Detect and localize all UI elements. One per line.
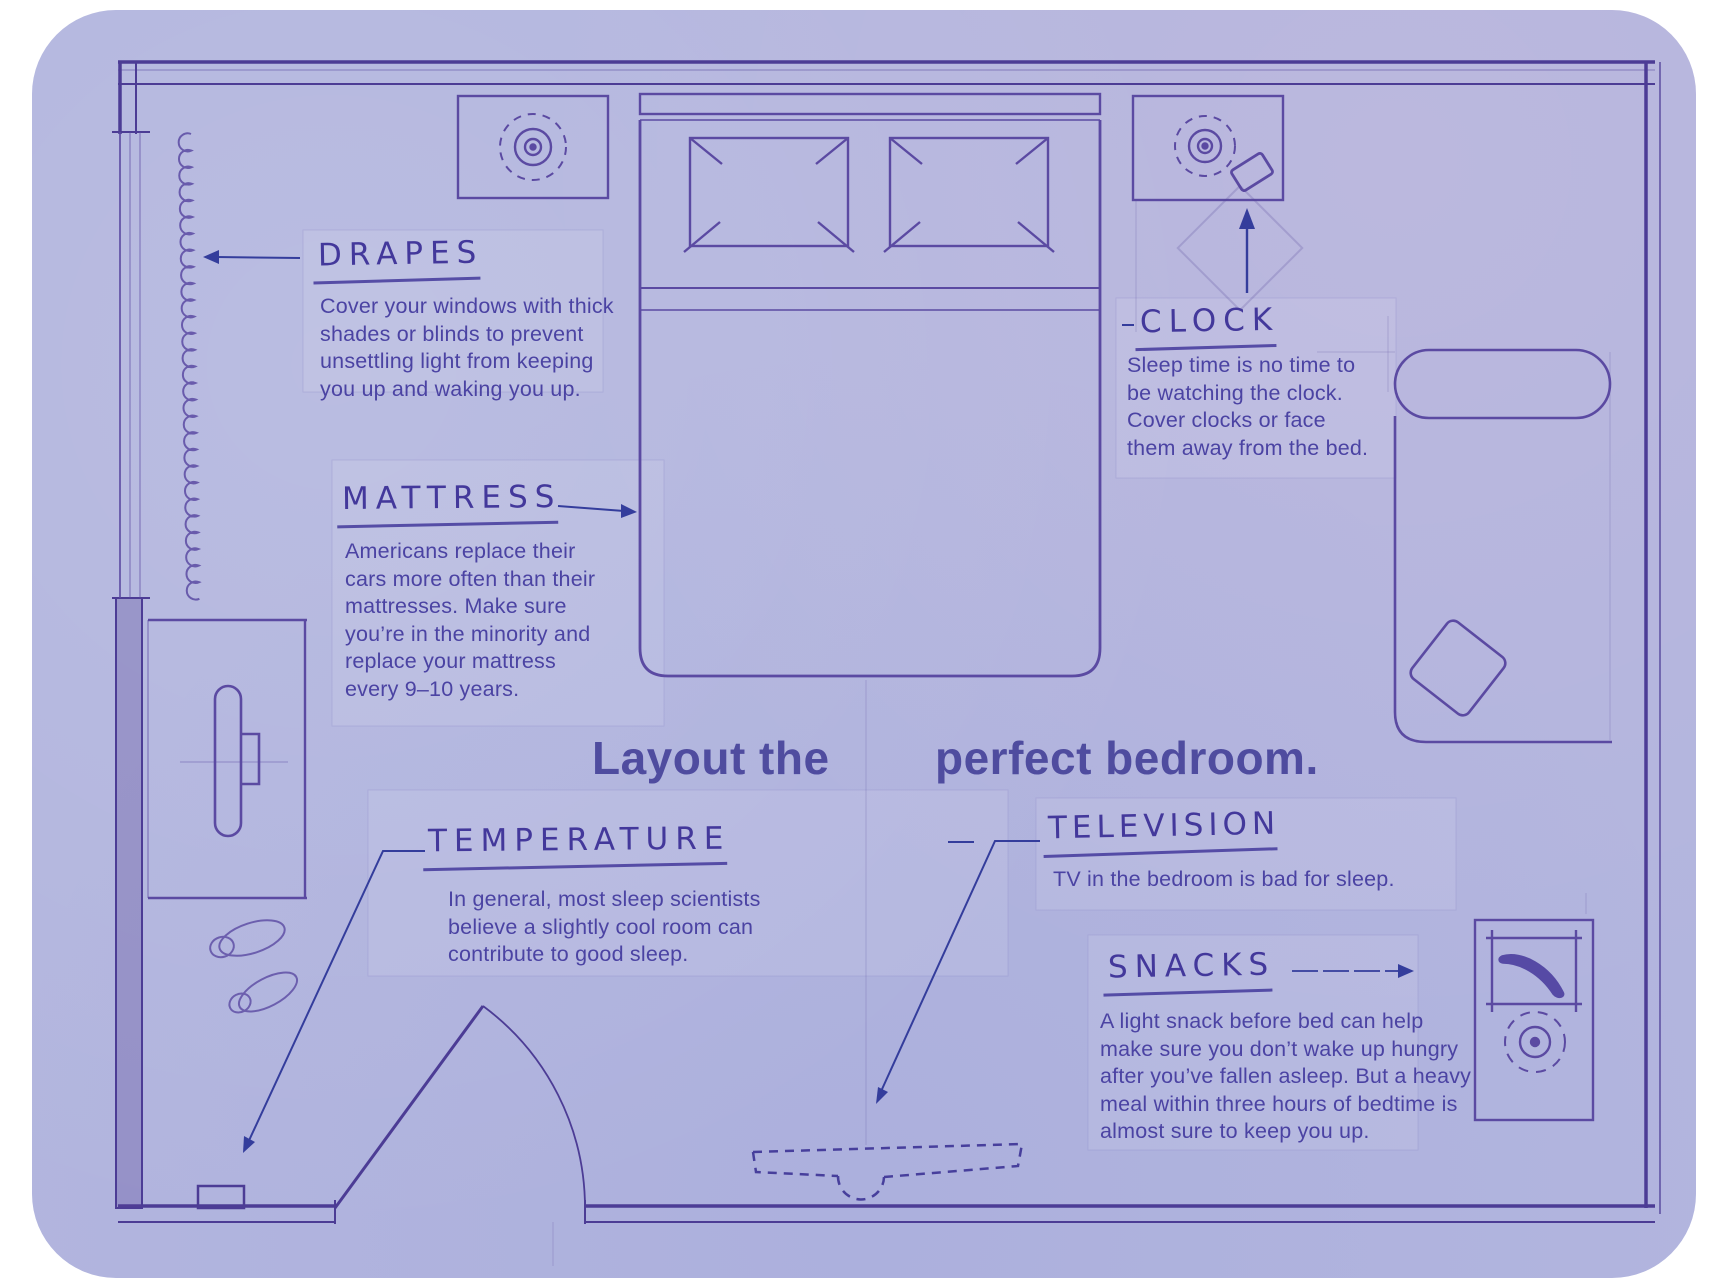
cushion xyxy=(1407,617,1508,718)
window-drapes-icon xyxy=(120,132,199,600)
ceiling-tv-dashed xyxy=(753,1144,1022,1199)
slippers-icon xyxy=(207,913,302,1019)
nightstand-left xyxy=(458,96,608,198)
chaise-lounge xyxy=(1395,350,1612,742)
bed xyxy=(640,94,1100,676)
floor-plan-stage: DRAPES MATTRESS CLOCK TEMPERATURE TELEVI… xyxy=(0,0,1728,1288)
banana-icon xyxy=(1499,955,1564,998)
plate-icon xyxy=(1505,1012,1565,1072)
mattress-text: Americans replace their cars more often … xyxy=(345,538,595,703)
page-title-right: perfect bedroom. xyxy=(935,731,1319,785)
tv-stand xyxy=(148,620,307,898)
temperature-text: In general, most sleep scientists believ… xyxy=(448,886,761,969)
poster-page: { "title": { "line_left": "Layout the", … xyxy=(0,0,1728,1288)
door xyxy=(335,1006,585,1224)
headboard xyxy=(640,94,1100,114)
door-leaf xyxy=(335,1006,483,1208)
door-swing-arc xyxy=(483,1006,585,1208)
nightstand-right xyxy=(1133,96,1302,310)
drapes-text: Cover your windows with thick shades or … xyxy=(320,293,614,403)
television-icon xyxy=(215,686,259,836)
lamp-icon xyxy=(500,114,566,180)
snacks-label: SNACKS xyxy=(1108,947,1276,986)
television-text: TV in the bedroom is bad for sleep. xyxy=(1053,866,1395,894)
television-label: TELEVISION xyxy=(1048,806,1281,847)
alarm-clock-icon xyxy=(1230,152,1273,191)
snack-station xyxy=(1475,920,1593,1120)
drapes-label: DRAPES xyxy=(318,235,484,274)
pillow xyxy=(884,138,1054,252)
compass-diamond xyxy=(1178,186,1302,310)
mattress-label: MATTRESS xyxy=(342,479,562,517)
snacks-text: A light snack before bed can help make s… xyxy=(1100,1008,1471,1146)
temperature-label: TEMPERATURE xyxy=(428,821,731,860)
page-title-left: Layout the xyxy=(592,731,830,785)
drapes-arrow xyxy=(203,250,300,264)
clock-text: Sleep time is no time to be watching the… xyxy=(1127,352,1368,462)
clock-label: CLOCK xyxy=(1140,302,1280,340)
pillow xyxy=(684,138,854,252)
lamp-icon xyxy=(1175,116,1235,176)
